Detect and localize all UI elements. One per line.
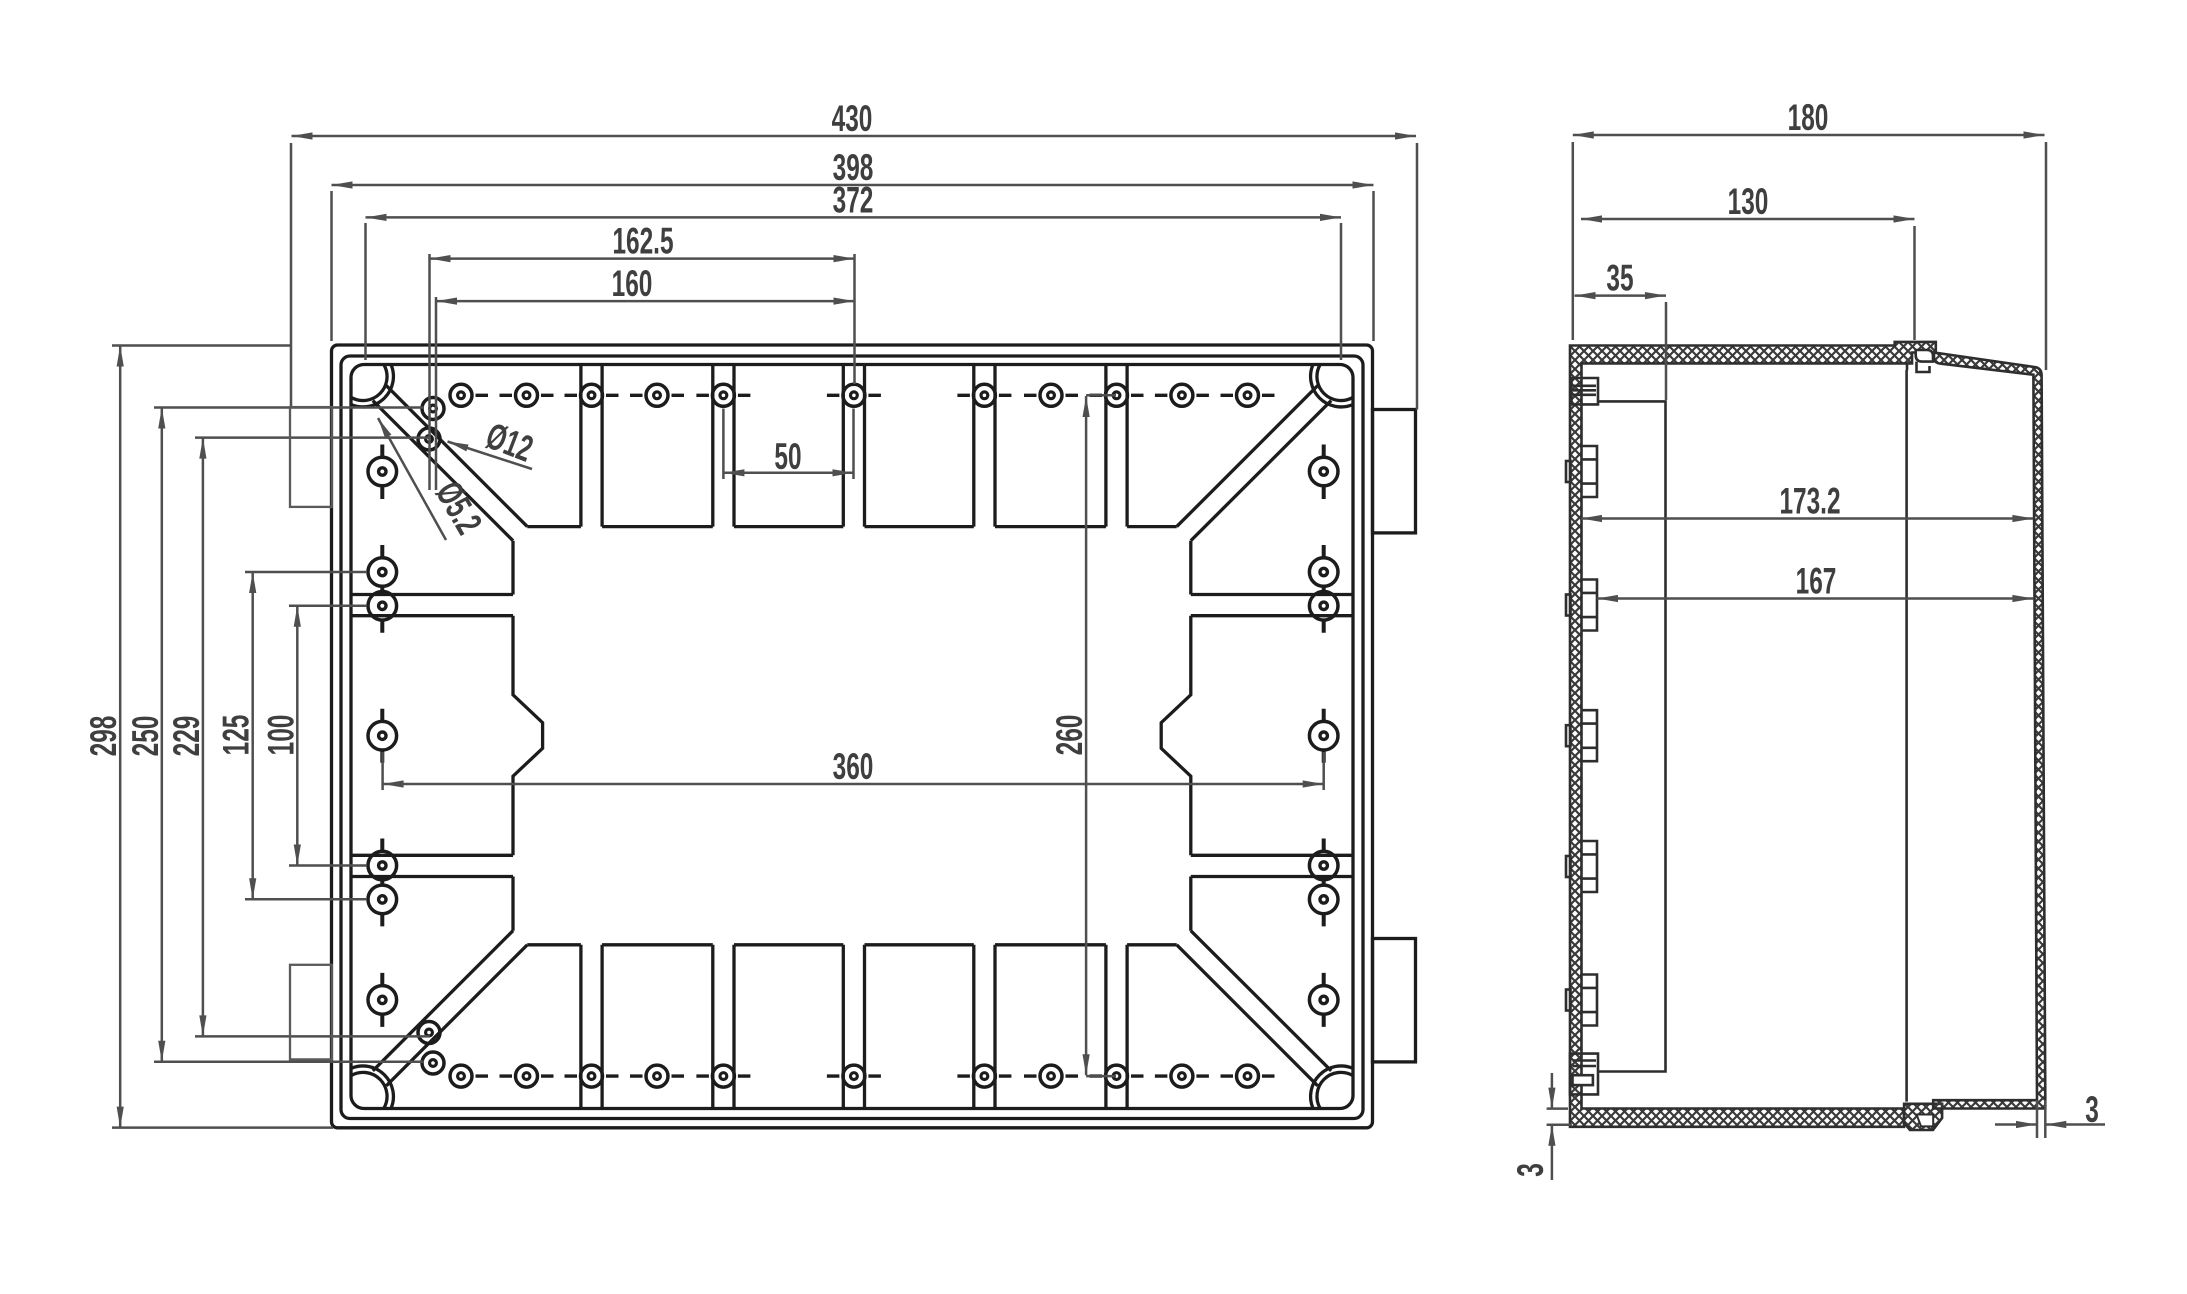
svg-text:3: 3 [2085, 1089, 2099, 1130]
svg-text:250: 250 [125, 716, 166, 757]
svg-text:298: 298 [83, 716, 124, 757]
svg-text:180: 180 [1788, 97, 1829, 138]
svg-text:229: 229 [166, 716, 207, 757]
svg-text:50: 50 [774, 436, 801, 477]
svg-text:173.2: 173.2 [1779, 480, 1840, 521]
svg-text:167: 167 [1796, 560, 1837, 601]
svg-text:100: 100 [260, 715, 301, 756]
svg-text:430: 430 [832, 98, 873, 139]
svg-text:160: 160 [612, 263, 653, 304]
svg-text:260: 260 [1049, 715, 1090, 756]
svg-text:3: 3 [1510, 1163, 1551, 1177]
svg-text:372: 372 [833, 179, 874, 220]
svg-text:125: 125 [215, 715, 256, 756]
svg-text:130: 130 [1728, 181, 1769, 222]
svg-text:162.5: 162.5 [612, 221, 673, 262]
svg-text:360: 360 [833, 746, 874, 787]
svg-text:35: 35 [1606, 258, 1633, 299]
